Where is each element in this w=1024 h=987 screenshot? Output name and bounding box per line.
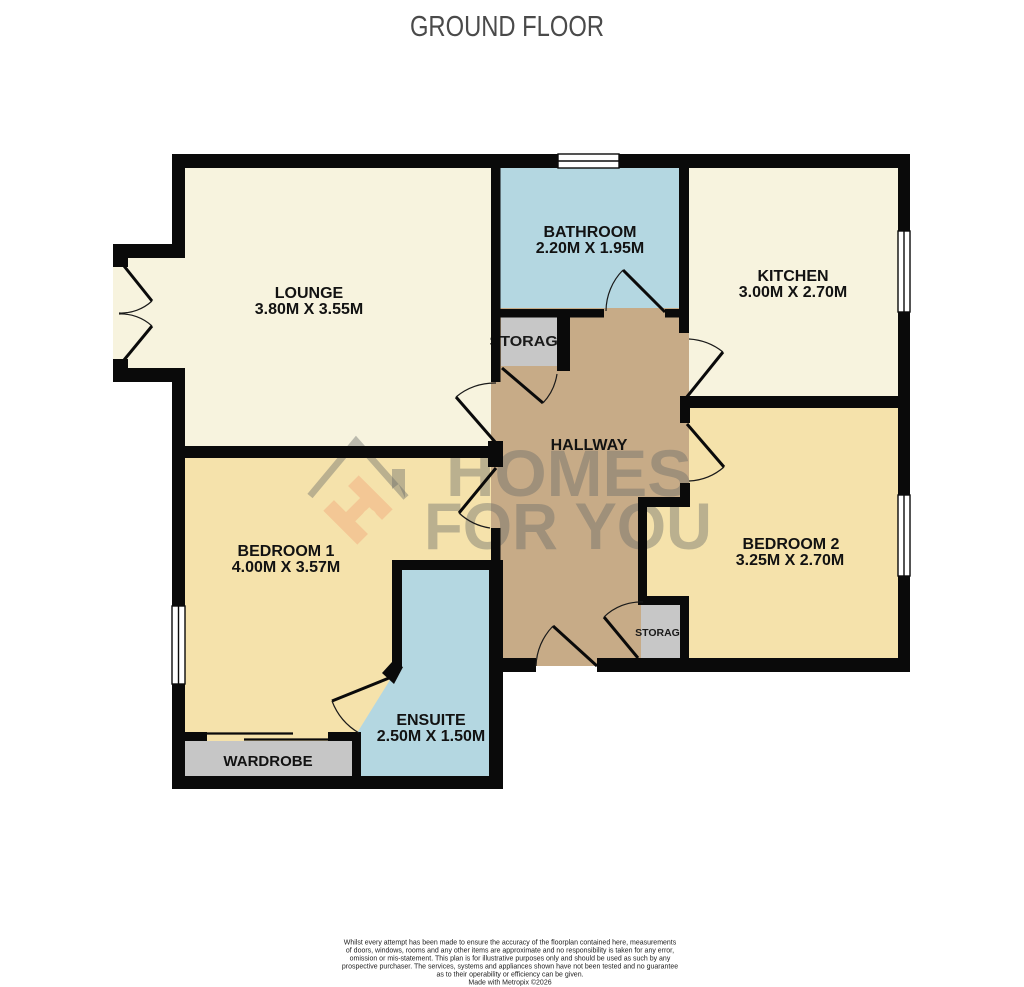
svg-text:ENSUITE: ENSUITE: [396, 712, 466, 729]
svg-text:2.20M X 1.95M: 2.20M X 1.95M: [536, 240, 645, 257]
svg-text:BEDROOM 2: BEDROOM 2: [743, 536, 840, 553]
svg-text:KITCHEN: KITCHEN: [757, 268, 828, 285]
svg-text:BATHROOM: BATHROOM: [543, 224, 636, 241]
svg-text:GROUND FLOOR: GROUND FLOOR: [410, 10, 604, 43]
svg-text:HALLWAY: HALLWAY: [551, 437, 628, 454]
svg-text:BEDROOM 1: BEDROOM 1: [238, 543, 335, 560]
svg-text:STORAGE: STORAGE: [490, 334, 569, 350]
svg-text:3.25M X 2.70M: 3.25M X 2.70M: [736, 552, 845, 569]
svg-text:3.80M X 3.55M: 3.80M X 3.55M: [255, 301, 364, 318]
svg-text:WARDROBE: WARDROBE: [223, 753, 312, 770]
svg-text:STORAGE: STORAGE: [635, 627, 687, 639]
svg-text:4.00M X 3.57M: 4.00M X 3.57M: [232, 559, 341, 576]
svg-text:Made with Metropix ©2026: Made with Metropix ©2026: [468, 977, 551, 986]
svg-text:3.00M X 2.70M: 3.00M X 2.70M: [739, 284, 848, 301]
svg-text:2.50M X 1.50M: 2.50M X 1.50M: [377, 728, 486, 745]
svg-text:LOUNGE: LOUNGE: [275, 285, 344, 302]
